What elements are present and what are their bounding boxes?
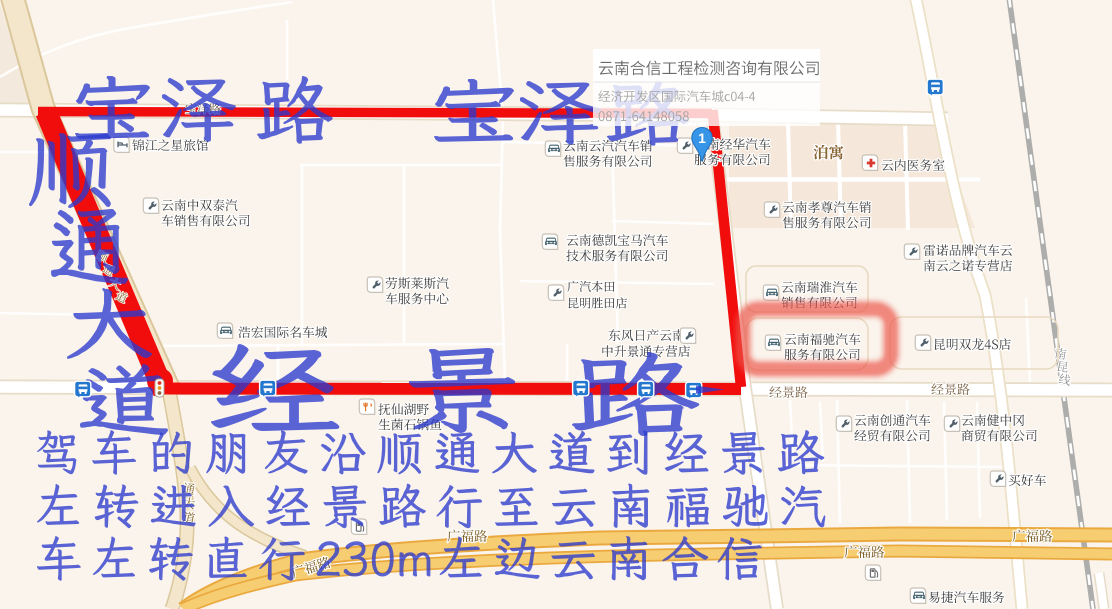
svg-text:1: 1 [698, 130, 706, 146]
